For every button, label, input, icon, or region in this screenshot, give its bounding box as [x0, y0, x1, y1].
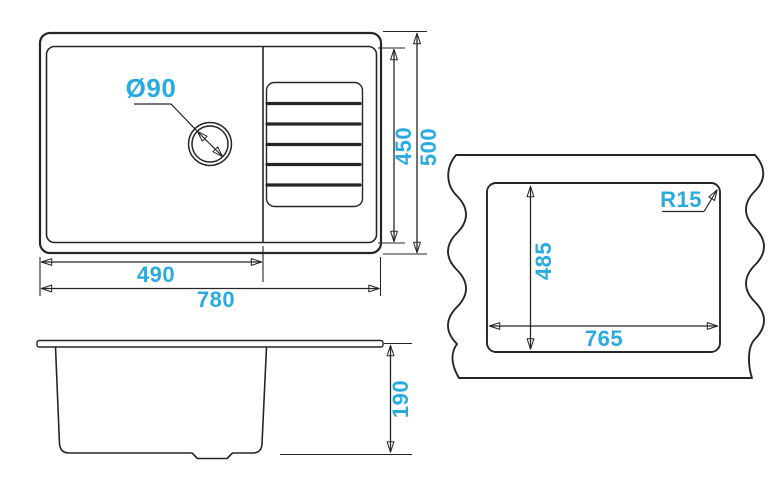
drainboard	[267, 83, 363, 207]
sink-rim-profile	[37, 341, 383, 348]
dim-label-overall-width: 780	[197, 289, 235, 311]
dim-label-overall-depth: 500	[418, 128, 440, 166]
dim-label-inner-depth: 450	[393, 127, 415, 165]
top-view-extension-lines	[40, 32, 427, 297]
sink-dimension-drawing: Ø90 490 780 450 500 190 485 765 R15	[0, 0, 776, 480]
dim-label-drain-diameter: Ø90	[126, 75, 177, 101]
dim-label-cutout-depth: 485	[533, 242, 555, 280]
top-view-dimension-lines	[42, 34, 418, 289]
dim-label-corner-radius: R15	[660, 189, 702, 211]
bowl-profile	[56, 347, 267, 459]
drain-diameter-callout	[134, 104, 223, 157]
dim-label-bowl-height: 190	[390, 380, 412, 418]
dim-label-bowl-width: 490	[137, 264, 175, 286]
front-view	[37, 341, 412, 459]
top-view	[40, 32, 427, 297]
dim-label-cutout-width: 765	[585, 328, 623, 350]
